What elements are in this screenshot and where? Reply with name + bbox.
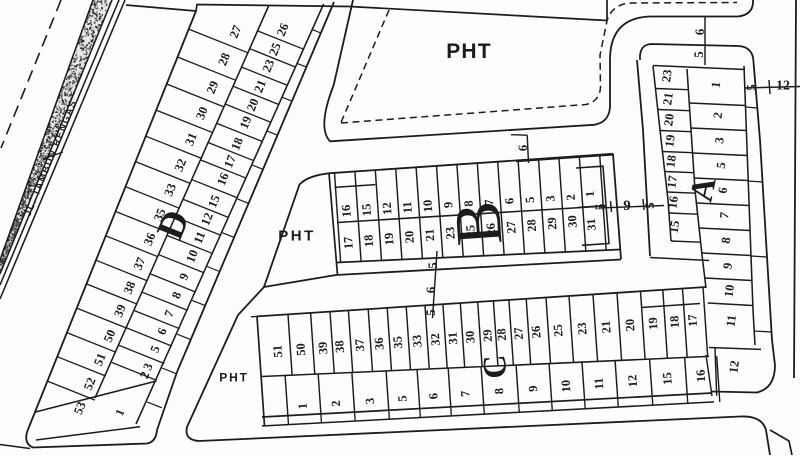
- svg-text:6: 6: [423, 286, 438, 293]
- svg-text:35: 35: [390, 336, 405, 349]
- svg-text:1: 1: [583, 191, 597, 198]
- svg-text:16: 16: [665, 195, 681, 209]
- svg-text:50: 50: [293, 343, 308, 356]
- svg-text:20: 20: [402, 230, 417, 243]
- svg-text:10: 10: [721, 284, 737, 298]
- svg-text:20: 20: [661, 113, 677, 127]
- svg-text:37: 37: [352, 338, 367, 351]
- svg-text:30: 30: [565, 215, 580, 228]
- svg-text:26: 26: [484, 223, 499, 236]
- svg-text:23: 23: [575, 322, 590, 335]
- svg-text:15: 15: [667, 220, 683, 234]
- svg-text:5: 5: [592, 203, 607, 210]
- svg-text:21: 21: [660, 92, 676, 106]
- svg-text:19: 19: [646, 317, 661, 330]
- svg-text:25: 25: [551, 324, 566, 337]
- svg-text:8: 8: [492, 388, 506, 395]
- svg-text:2: 2: [564, 194, 578, 201]
- svg-text:26: 26: [529, 325, 544, 338]
- svg-text:17: 17: [341, 236, 356, 249]
- svg-text:12: 12: [380, 202, 395, 215]
- svg-text:18: 18: [663, 154, 679, 168]
- svg-text:5: 5: [642, 202, 657, 209]
- svg-text:39: 39: [316, 341, 331, 354]
- svg-text:8: 8: [461, 200, 475, 207]
- svg-text:5: 5: [523, 196, 537, 203]
- svg-text:38: 38: [332, 340, 347, 353]
- svg-text:5: 5: [395, 395, 409, 402]
- svg-text:15: 15: [359, 203, 374, 216]
- svg-text:16: 16: [693, 369, 708, 382]
- svg-text:28: 28: [524, 219, 539, 232]
- svg-text:10: 10: [559, 379, 574, 392]
- svg-text:25: 25: [463, 225, 478, 238]
- svg-text:31: 31: [584, 218, 599, 231]
- svg-text:5: 5: [423, 309, 438, 316]
- svg-text:6: 6: [502, 197, 516, 204]
- svg-text:29: 29: [545, 217, 560, 230]
- svg-text:12: 12: [625, 374, 640, 387]
- svg-text:21: 21: [422, 228, 437, 241]
- svg-text:1: 1: [295, 403, 309, 410]
- svg-text:7: 7: [482, 199, 496, 206]
- svg-text:10: 10: [420, 199, 435, 212]
- svg-text:31: 31: [445, 332, 460, 345]
- svg-text:18: 18: [361, 234, 376, 247]
- svg-text:7: 7: [458, 390, 472, 397]
- svg-text:2: 2: [329, 400, 343, 407]
- svg-text:C: C: [477, 354, 515, 380]
- svg-text:32: 32: [428, 333, 443, 346]
- svg-text:3: 3: [543, 195, 557, 202]
- svg-text:20: 20: [623, 318, 638, 331]
- svg-text:16: 16: [339, 204, 354, 217]
- svg-text:9: 9: [623, 198, 631, 214]
- svg-text:6: 6: [426, 393, 440, 400]
- svg-text:11: 11: [400, 201, 415, 214]
- svg-text:6: 6: [515, 144, 530, 151]
- svg-text:12: 12: [726, 360, 742, 374]
- svg-text:19: 19: [662, 134, 678, 148]
- svg-text:23: 23: [443, 226, 458, 239]
- svg-text:27: 27: [504, 221, 519, 234]
- svg-text:27: 27: [511, 327, 526, 340]
- svg-text:5: 5: [691, 51, 706, 58]
- svg-text:PHT: PHT: [278, 227, 316, 244]
- svg-text:18: 18: [667, 315, 682, 328]
- svg-text:36: 36: [372, 337, 387, 350]
- svg-text:33: 33: [410, 334, 425, 347]
- svg-text:PHT: PHT: [446, 40, 492, 63]
- svg-text:19: 19: [382, 232, 397, 245]
- svg-text:5: 5: [425, 262, 440, 269]
- svg-text:PHT: PHT: [219, 371, 248, 385]
- svg-text:17: 17: [664, 175, 680, 189]
- svg-text:23: 23: [659, 69, 675, 83]
- svg-text:3: 3: [363, 397, 377, 404]
- svg-text:11: 11: [592, 377, 607, 390]
- svg-text:9: 9: [526, 385, 540, 392]
- svg-text:29: 29: [480, 329, 495, 342]
- svg-text:17: 17: [685, 314, 700, 327]
- svg-text:11: 11: [723, 314, 739, 328]
- svg-text:12: 12: [776, 79, 790, 94]
- svg-text:6: 6: [692, 28, 707, 35]
- svg-text:51: 51: [270, 345, 285, 358]
- svg-text:15: 15: [660, 372, 675, 385]
- svg-text:5: 5: [743, 84, 758, 91]
- svg-text:9: 9: [441, 201, 455, 208]
- svg-text:30: 30: [463, 330, 478, 343]
- svg-text:28: 28: [494, 328, 509, 341]
- svg-text:21: 21: [599, 320, 614, 333]
